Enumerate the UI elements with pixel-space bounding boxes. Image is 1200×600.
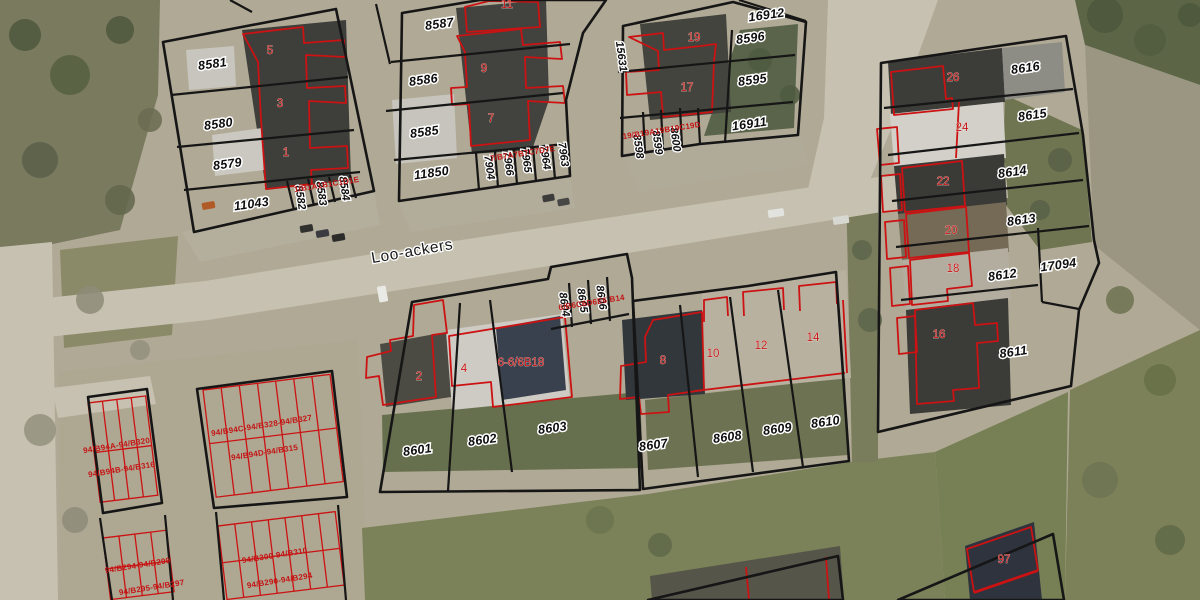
house-number-14: 14: [807, 332, 820, 344]
tree: [1048, 148, 1072, 172]
house-number-2: 2: [416, 371, 422, 383]
house-number-19: 19: [688, 32, 701, 44]
house-number-10: 10: [707, 348, 720, 360]
house-number-1: 1: [283, 147, 289, 159]
tree: [24, 414, 56, 446]
house-number-97: 97: [998, 554, 1011, 566]
tree: [130, 340, 150, 360]
tree: [1106, 286, 1134, 314]
tree: [9, 19, 41, 51]
house-number-24: 24: [956, 122, 969, 134]
roof: [906, 298, 1011, 414]
house-number-17: 17: [681, 82, 694, 94]
tree: [852, 240, 872, 260]
tree: [106, 16, 134, 44]
house-number-5: 5: [267, 45, 273, 57]
tree: [105, 185, 135, 215]
house-number-20: 20: [945, 225, 958, 237]
house-number-7: 7: [488, 113, 494, 125]
cadastral-map-canvas[interactable]: 8581858085791104385828583858485878586858…: [0, 0, 1200, 600]
tree: [1082, 462, 1118, 498]
tree: [50, 55, 90, 95]
house-number-11: 11: [501, 0, 513, 11]
tree: [22, 142, 58, 178]
tree: [76, 286, 104, 314]
house-number-26: 26: [947, 72, 960, 84]
tree: [62, 507, 88, 533]
roof: [640, 14, 731, 120]
tree: [1134, 24, 1166, 56]
tree: [1144, 364, 1176, 396]
house-number-18: 18: [947, 263, 960, 275]
tree: [138, 108, 162, 132]
house-number-12: 12: [755, 340, 768, 352]
house-number-4: 4: [461, 363, 468, 375]
house-number-3: 3: [277, 98, 283, 110]
house-number-16: 16: [933, 329, 946, 341]
tree: [586, 506, 614, 534]
house-number-6-6/6B18: 6-6/6B18: [498, 357, 545, 369]
map-viewport[interactable]: 8581858085791104385828583858485878586858…: [0, 0, 1200, 600]
tree: [1155, 525, 1185, 555]
tree: [648, 533, 672, 557]
house-number-9: 9: [481, 63, 487, 75]
house-number-22: 22: [937, 176, 950, 188]
house-number-8: 8: [660, 355, 666, 367]
